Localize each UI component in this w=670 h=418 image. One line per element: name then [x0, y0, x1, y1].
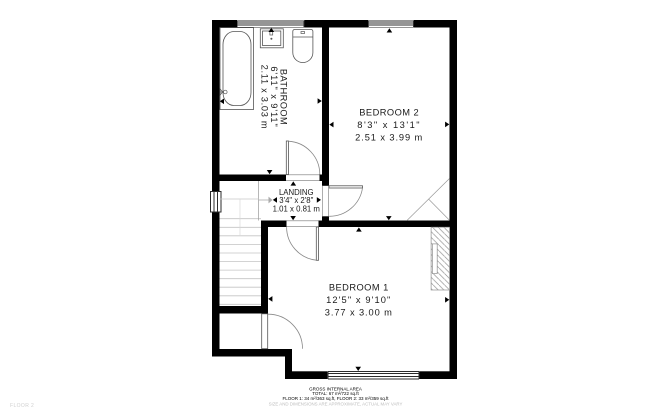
svg-text:BEDROOM 1: BEDROOM 1	[329, 283, 389, 293]
svg-text:3.77 x 3.00 m: 3.77 x 3.00 m	[325, 308, 393, 318]
svg-text:FLOOR 1: 34 m²/363 sq.ft, FLOO: FLOOR 1: 34 m²/363 sq.ft, FLOOR 2: 33 m²…	[282, 396, 389, 401]
svg-text:SIZE AND DIMENSIONS ARE APPROX: SIZE AND DIMENSIONS ARE APPROXIMATE, ACT…	[269, 402, 403, 407]
svg-text:12'5" x 9'10": 12'5" x 9'10"	[326, 295, 391, 305]
svg-text:BEDROOM 2: BEDROOM 2	[359, 108, 419, 118]
svg-text:1.01 x 0.81 m: 1.01 x 0.81 m	[273, 204, 320, 213]
svg-text:2.11 x 3.03 m: 2.11 x 3.03 m	[260, 65, 270, 130]
svg-text:2.51 x 3.99 m: 2.51 x 3.99 m	[355, 132, 423, 142]
svg-text:8'3" x 13'1": 8'3" x 13'1"	[357, 120, 421, 130]
svg-text:FLOOR 2: FLOOR 2	[10, 403, 34, 409]
